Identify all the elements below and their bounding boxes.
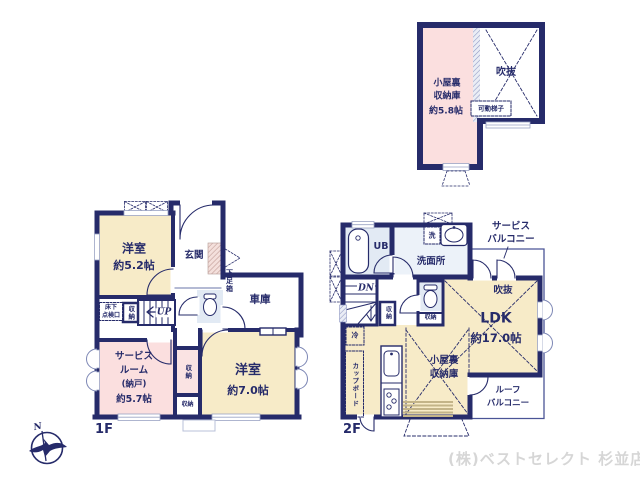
stair-closet-label: 収納 — [127, 305, 134, 320]
service-room-size: 約5.7帖 — [116, 395, 152, 405]
toilet-icon-2f — [424, 285, 437, 308]
roof-balcony-line2: バルコニー — [487, 400, 529, 409]
service-room-line3: (納戸) — [122, 381, 147, 390]
toilet-closet-label: 収納 — [424, 315, 436, 321]
floor1-tag: 1F — [95, 423, 113, 437]
roof-balcony-area — [470, 375, 540, 417]
pull-down-ladder-mark — [442, 171, 470, 186]
ldk-name: LDK — [480, 312, 511, 327]
bedroom1-size: 約5.2帖 — [113, 260, 155, 272]
company-watermark: (株)ベストセレクト 杉並店 — [448, 448, 640, 469]
service-balcony-line1: サービス — [492, 222, 530, 232]
stairs-up-label: UP — [156, 308, 173, 317]
void-label-2f: 吹抜 — [493, 286, 512, 296]
shoe-cabinet — [208, 243, 221, 274]
toilet-door-1f — [179, 297, 197, 315]
bedroom1-name: 洋室 — [122, 243, 146, 256]
attic-storage-name-line2: 収納庫 — [433, 92, 460, 101]
washbasin-icon — [441, 225, 467, 246]
attic-storage-name-line1: 小屋裏 — [433, 79, 460, 88]
attic-storage-size: 約5.8帖 — [429, 107, 463, 116]
service-balcony-line2: バルコニー — [487, 235, 534, 245]
garage-label: 車庫 — [250, 294, 271, 305]
compass-north-label: N — [33, 423, 43, 434]
closet-lower-label: 収納 — [181, 402, 193, 408]
floor-plan-graphic — [0, 0, 640, 480]
underfloor-hatch-line2: 点検口 — [102, 313, 120, 319]
attic-storage-2f-line2: 収納庫 — [430, 370, 459, 380]
floor-plan-page: 小屋裏 収納庫 約5.8帖 吹抜 可動梯子 洋室 約5.2帖 玄関 下足箱 車庫… — [0, 0, 640, 480]
attic-void-label: 吹抜 — [496, 68, 516, 79]
washroom-label: 洗面所 — [417, 257, 446, 267]
porch-step — [183, 420, 215, 431]
stairs-down-label: DN — [357, 284, 375, 293]
bedroom2-name: 洋室 — [235, 364, 261, 378]
corridor-door — [223, 307, 245, 329]
washer-label: 洗 — [429, 232, 436, 239]
underfloor-hatch-line1: 床下 — [105, 305, 117, 311]
roof-balcony-line1: ルーフ — [496, 387, 521, 396]
service-room-line1: サービス — [115, 352, 153, 362]
unit-bath-label: UB — [374, 242, 389, 252]
compass-icon — [29, 431, 67, 464]
shoe-cabinet-label: 下足箱 — [226, 269, 233, 293]
front-door — [180, 205, 214, 239]
bedroom2-size: 約7.0帖 — [227, 385, 269, 397]
attic-ladder-label: 可動梯子 — [478, 106, 504, 113]
stove-icon — [384, 389, 399, 415]
toilet-icon-1f — [204, 294, 217, 316]
ldk-size: 約17.0帖 — [470, 332, 521, 344]
fridge-label: 冷 — [352, 332, 359, 339]
kitchen-counter — [381, 346, 402, 417]
hall-closet-label: 収納 — [385, 306, 391, 320]
closet-upper-label: 収納 — [184, 365, 191, 380]
service-room-line2: ルーム — [120, 366, 148, 376]
floor2-tag: 2F — [343, 423, 361, 437]
cupboard-label: カップボード — [351, 363, 358, 408]
attic-storage-2f-line1: 小屋裏 — [430, 356, 459, 366]
entrance-label: 玄関 — [184, 251, 203, 261]
